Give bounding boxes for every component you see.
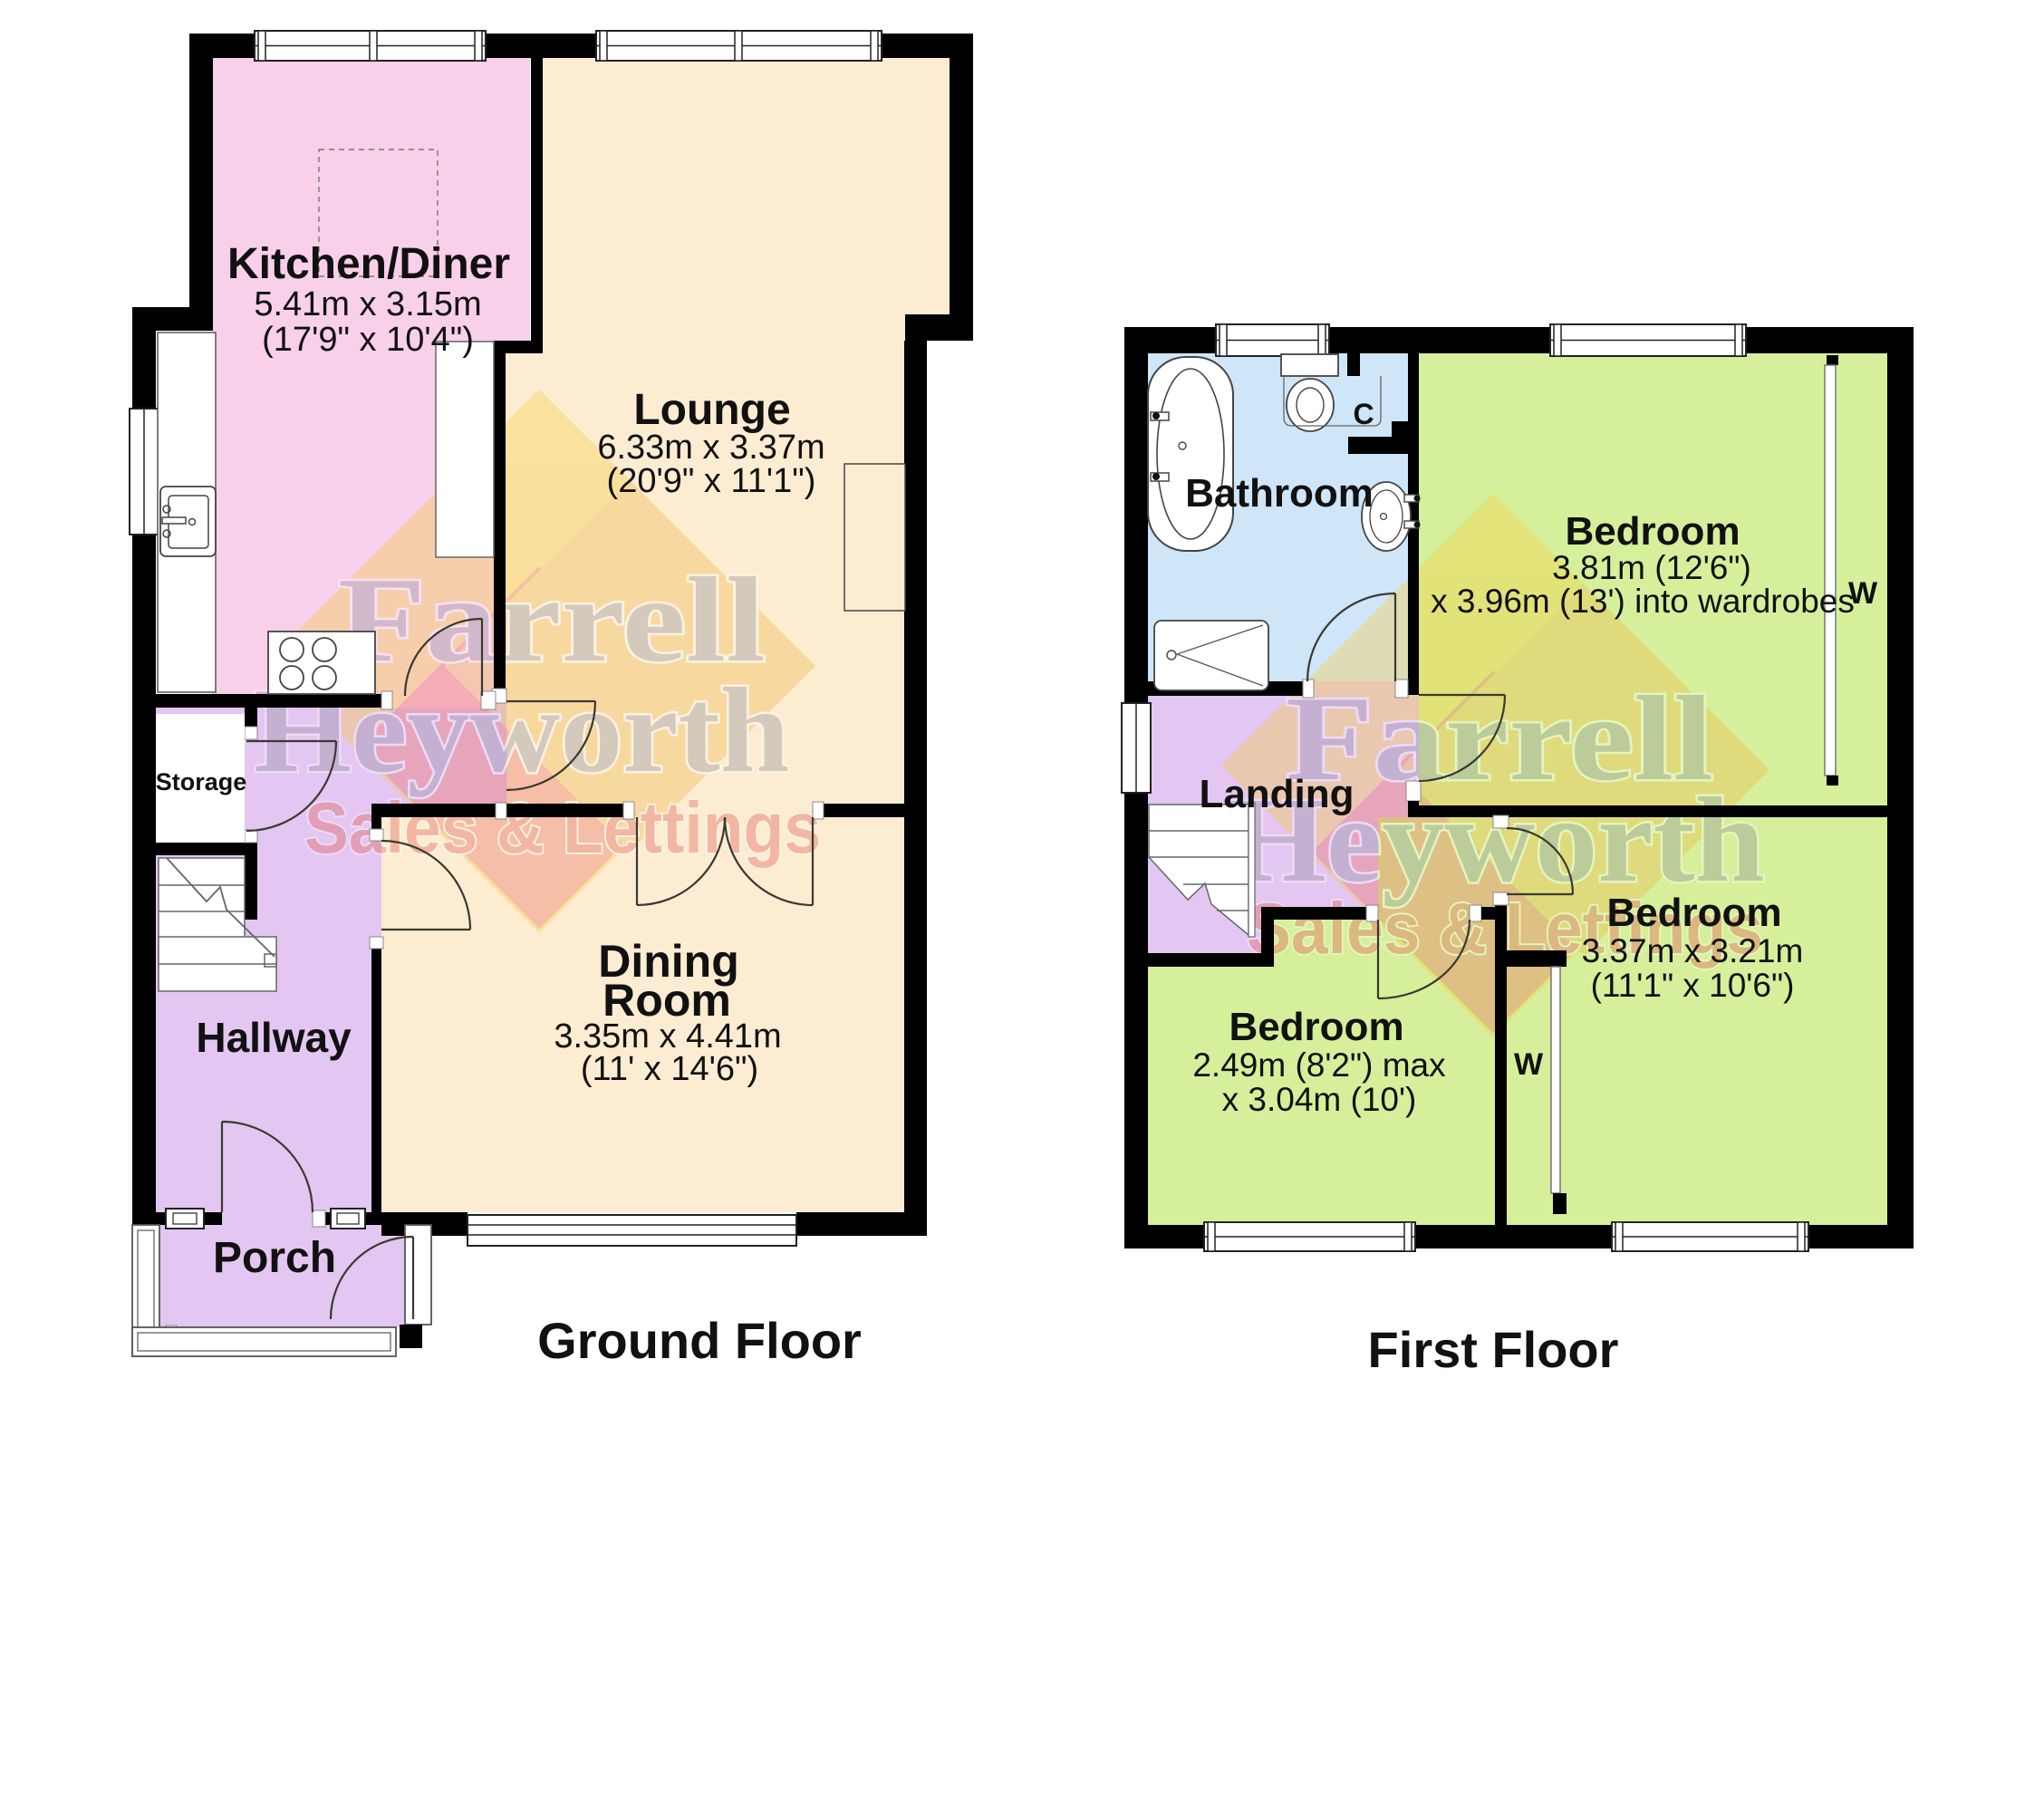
svg-text:C: C: [1353, 398, 1374, 430]
svg-text:Landing: Landing: [1199, 772, 1354, 816]
svg-text:Hallway: Hallway: [196, 1014, 352, 1061]
svg-text:5.41m x 3.15m: 5.41m x 3.15m: [254, 285, 481, 323]
svg-text:Bathroom: Bathroom: [1185, 471, 1374, 516]
svg-text:2.49m (8'2") max: 2.49m (8'2") max: [1192, 1046, 1446, 1084]
svg-text:6.33m x 3.37m: 6.33m x 3.37m: [597, 429, 824, 467]
svg-text:(11'1" x 10'6"): (11'1" x 10'6"): [1591, 967, 1795, 1004]
svg-text:Bedroom: Bedroom: [1229, 1005, 1403, 1049]
svg-text:Bedroom: Bedroom: [1606, 891, 1781, 935]
svg-text:W: W: [1514, 1047, 1544, 1082]
svg-text:(11' x 14'6"): (11' x 14'6"): [581, 1050, 758, 1088]
svg-text:Storage: Storage: [156, 768, 247, 795]
svg-text:x 3.04m (10'): x 3.04m (10'): [1222, 1081, 1417, 1118]
svg-text:3.81m (12'6"): 3.81m (12'6"): [1552, 549, 1751, 586]
svg-text:W: W: [1848, 576, 1878, 611]
svg-text:Sales & Lettings: Sales & Lettings: [304, 787, 821, 868]
svg-text:First Floor: First Floor: [1368, 1321, 1619, 1378]
svg-text:Porch: Porch: [213, 1234, 336, 1282]
svg-text:Kitchen/Diner: Kitchen/Diner: [227, 240, 510, 288]
svg-text:Bedroom: Bedroom: [1565, 509, 1740, 554]
svg-text:(20'9" x 11'1"): (20'9" x 11'1"): [607, 462, 816, 500]
svg-text:(17'9" x 10'4"): (17'9" x 10'4"): [262, 321, 474, 359]
svg-text:3.37m x 3.21m: 3.37m x 3.21m: [1582, 932, 1804, 969]
svg-text:Ground Floor: Ground Floor: [537, 1312, 862, 1369]
svg-text:Lounge: Lounge: [633, 386, 790, 434]
svg-text:x 3.96m (13') into wardrobes: x 3.96m (13') into wardrobes: [1431, 583, 1855, 620]
